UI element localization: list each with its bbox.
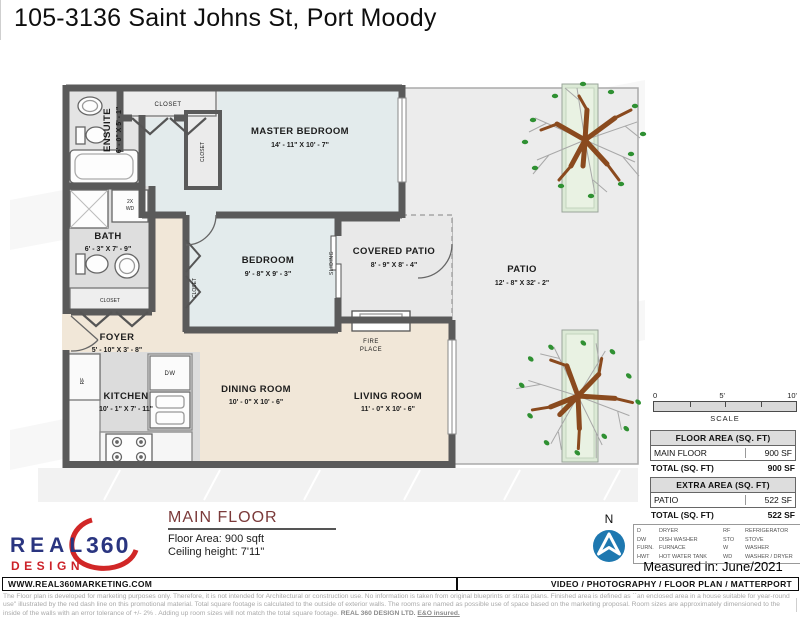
floorplan-sheet: 105-3136 Saint Johns St, Port Moody bbox=[0, 0, 800, 619]
room-dims-bath: 6' - 3" X 7' - 9" bbox=[85, 246, 132, 253]
table-total-value: 900 SF bbox=[768, 463, 795, 473]
scale-tick-mark bbox=[690, 402, 691, 407]
closet-label: CLOSET bbox=[100, 298, 120, 304]
sliding-door-panel bbox=[336, 264, 341, 298]
room-label-living-room: LIVING ROOM bbox=[354, 391, 422, 402]
room-dims-master-bedroom: 14' - 11" X 10' - 7" bbox=[271, 142, 329, 149]
floor-info-area: Floor Area: 900 sqft bbox=[168, 533, 336, 545]
fireplace-label: FIRE bbox=[363, 339, 379, 345]
window bbox=[398, 98, 406, 182]
fridge-label: RF bbox=[80, 378, 86, 385]
floor-area-table: FLOOR AREA (SQ. FT) MAIN FLOOR 900 SF TO… bbox=[650, 430, 796, 475]
table-row-value: 522 SF bbox=[745, 495, 792, 505]
scale-bar: 0 5' 10' SCALE bbox=[653, 391, 797, 423]
real360-logo-icon: REAL 360 DESIGN bbox=[6, 516, 161, 578]
sink bbox=[78, 97, 102, 115]
north-arrow-icon bbox=[589, 526, 629, 566]
sidewalk bbox=[38, 468, 638, 502]
logo-real: REAL bbox=[10, 534, 87, 557]
sink bbox=[115, 254, 139, 278]
window bbox=[448, 340, 456, 434]
footer-services: VIDEO / PHOTOGRAPHY / FLOOR PLAN / MATTE… bbox=[457, 577, 799, 591]
scale-tick-mark bbox=[761, 402, 762, 407]
table-row: PATIO 522 SF bbox=[651, 493, 795, 507]
legend-abbr: DW bbox=[637, 537, 659, 543]
measured-date: Measured in: June/2021 bbox=[628, 559, 798, 574]
closet-label: CLOSET bbox=[192, 278, 198, 298]
legend-label: DISH WASHER bbox=[659, 537, 723, 543]
closet-label: CLOSET bbox=[200, 142, 206, 162]
table-header: FLOOR AREA (SQ. FT) bbox=[651, 431, 795, 446]
fridge bbox=[68, 354, 100, 400]
logo-design: DESIGN bbox=[11, 559, 84, 573]
legend-label: WASHER bbox=[745, 545, 799, 551]
legend-label: DRYER bbox=[659, 528, 723, 534]
scale-tick-0: 0 bbox=[653, 391, 657, 400]
room-dims-ensuite: 6' - 0" X 5' - 1" bbox=[116, 107, 123, 154]
disclaimer: The Floor plan is developed for marketin… bbox=[3, 593, 797, 618]
floor-info-ceiling: Ceiling height: 7'11" bbox=[168, 546, 336, 558]
room-dims-foyer: 5' - 10" X 3' - 8" bbox=[92, 347, 142, 354]
room-dims-patio: 12' - 8" X 32' - 2" bbox=[495, 280, 549, 287]
legend-abbr: W bbox=[723, 545, 745, 551]
legend-label: FURNACE bbox=[659, 545, 723, 551]
scale-tick-10: 10' bbox=[787, 391, 797, 400]
room-label-covered-patio: COVERED PATIO bbox=[353, 246, 435, 257]
room-label-foyer: FOYER bbox=[100, 332, 135, 343]
room-label-master-bedroom: MASTER BEDROOM bbox=[251, 126, 349, 137]
legend-label: STOVE bbox=[745, 537, 799, 543]
scale-tick-5: 5' bbox=[719, 391, 725, 400]
closet-label: CLOSET bbox=[154, 102, 181, 108]
fireplace-label: PLACE bbox=[360, 347, 382, 353]
kitchen-sink bbox=[150, 392, 190, 428]
table-row: MAIN FLOOR 900 SF bbox=[651, 446, 795, 460]
legend-abbr: FURN. bbox=[637, 545, 659, 551]
room-label-bath: BATH bbox=[94, 231, 121, 242]
table-total-label: TOTAL (SQ. FT) bbox=[651, 510, 714, 520]
logo-360: 360 bbox=[86, 532, 130, 558]
toilet bbox=[76, 254, 108, 274]
sliding-door-label: SLIDING bbox=[329, 251, 335, 275]
table-total-value: 522 SF bbox=[768, 510, 795, 520]
entry-opening bbox=[62, 314, 71, 350]
table-row-label: PATIO bbox=[654, 495, 678, 505]
table-total-row: TOTAL (SQ. FT) 522 SF bbox=[650, 508, 796, 522]
room-label-kitchen: KITCHEN bbox=[103, 391, 148, 402]
scale-label: SCALE bbox=[653, 414, 797, 423]
room-label-dining-room: DINING ROOM bbox=[221, 384, 291, 395]
room-dims-living-room: 11' - 0" X 10' - 6" bbox=[361, 406, 415, 413]
company-logo: REAL 360 DESIGN bbox=[6, 516, 161, 583]
table-row-value: 900 SF bbox=[745, 448, 792, 458]
room-dims-kitchen: 10' - 1" X 7' - 11" bbox=[99, 406, 153, 413]
footer-website: WWW.REAL360MARKETING.COM bbox=[2, 577, 457, 591]
shower bbox=[70, 190, 108, 228]
dishwasher-label: DW bbox=[165, 371, 176, 377]
scale-tick-mark bbox=[725, 402, 726, 407]
north-arrow: N bbox=[586, 512, 632, 571]
legend: D DRYER RF REFRIGERATOR DW DISH WASHER S… bbox=[633, 524, 800, 564]
disclaimer-company: REAL 360 DESIGN LTD. bbox=[341, 610, 416, 617]
legend-abbr: STO bbox=[723, 537, 745, 543]
room-label-bedroom: BEDROOM bbox=[242, 255, 294, 266]
room-dims-bedroom: 9' - 8" X 9' - 3" bbox=[245, 271, 292, 278]
scale-bar-rule bbox=[653, 401, 797, 412]
north-label: N bbox=[586, 512, 632, 526]
room-dims-covered-patio: 8' - 9" X 8' - 4" bbox=[371, 262, 418, 269]
table-header: EXTRA AREA (SQ. FT) bbox=[651, 478, 795, 493]
floor-info: MAIN FLOOR Floor Area: 900 sqft Ceiling … bbox=[168, 509, 336, 558]
bathtub bbox=[70, 150, 138, 183]
legend-abbr: D bbox=[637, 528, 659, 534]
floor-info-title: MAIN FLOOR bbox=[168, 509, 336, 530]
room-dims-dining-room: 10' - 0" X 10' - 6" bbox=[229, 399, 283, 406]
legend-abbr: RF bbox=[723, 528, 745, 534]
stove bbox=[106, 434, 152, 464]
washer-dryer-label: 2X bbox=[127, 199, 134, 205]
extra-area-table: EXTRA AREA (SQ. FT) PATIO 522 SF TOTAL (… bbox=[650, 477, 796, 522]
disclaimer-eo: E&O insured. bbox=[417, 610, 459, 617]
room-label-ensuite: ENSUITE bbox=[102, 108, 113, 152]
washer-dryer-label: WD bbox=[126, 206, 135, 212]
table-row-label: MAIN FLOOR bbox=[654, 448, 707, 458]
legend-label: REFRIGERATOR bbox=[745, 528, 799, 534]
table-total-label: TOTAL (SQ. FT) bbox=[651, 463, 714, 473]
table-total-row: TOTAL (SQ. FT) 900 SF bbox=[650, 461, 796, 475]
room-label-patio: PATIO bbox=[507, 264, 537, 275]
